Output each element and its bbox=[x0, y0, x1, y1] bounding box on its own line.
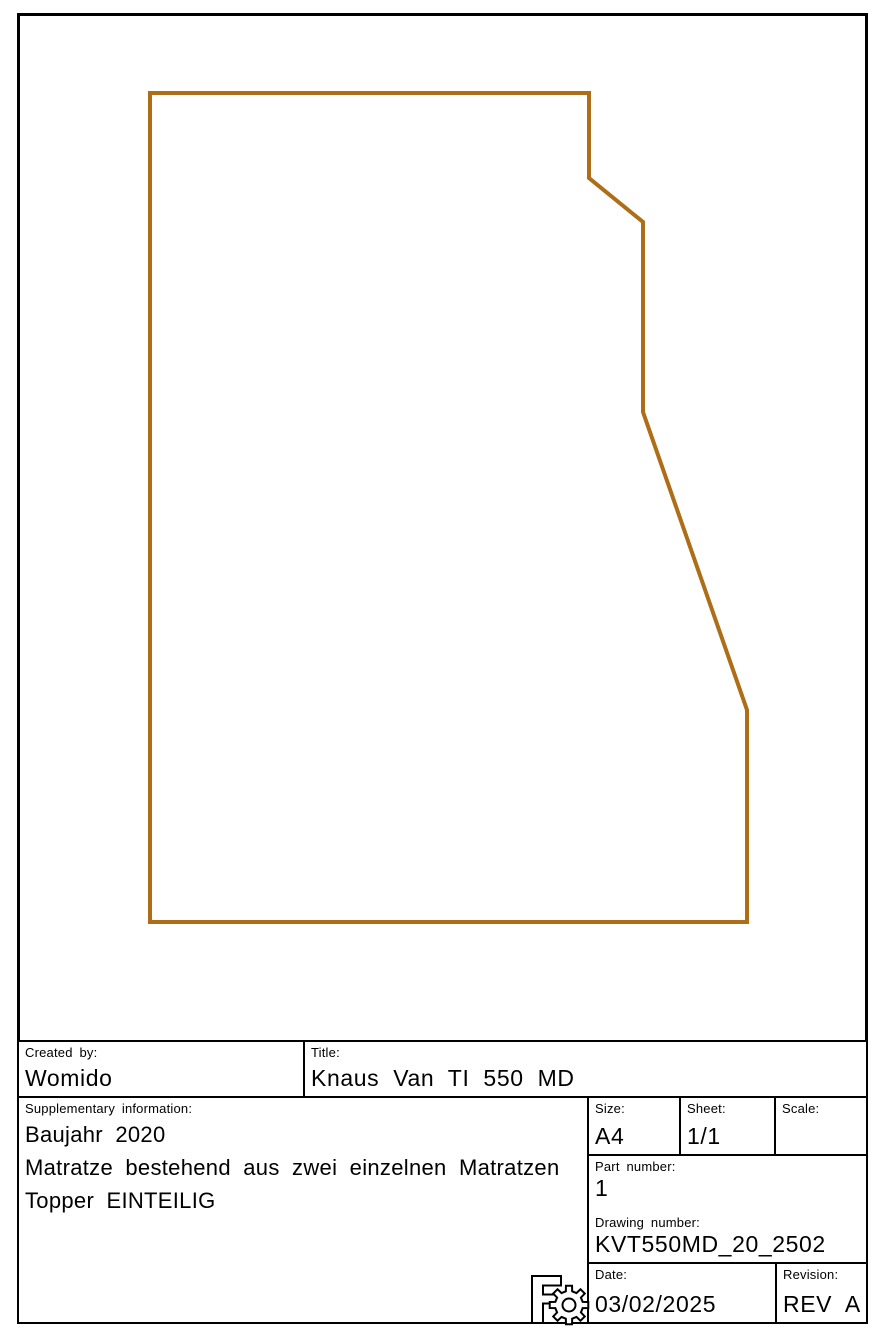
supplementary-info-lines: Baujahr 2020 Matratze bestehend aus zwei… bbox=[25, 1118, 581, 1217]
part-number-label: Part number: bbox=[595, 1159, 860, 1174]
revision-value: REV A bbox=[783, 1290, 860, 1318]
title-cell: Title: Knaus Van TI 550 MD bbox=[303, 1040, 868, 1098]
supplementary-info-cell: Supplementary information: Baujahr 2020 … bbox=[17, 1096, 589, 1324]
title-label: Title: bbox=[311, 1045, 860, 1060]
size-cell: Size: A4 bbox=[587, 1096, 681, 1156]
date-label: Date: bbox=[595, 1267, 769, 1282]
scale-cell: Scale: bbox=[774, 1096, 868, 1156]
sheet-label: Sheet: bbox=[687, 1101, 768, 1116]
drawing-number-value: KVT550MD_20_2502 bbox=[595, 1230, 860, 1258]
created-by-cell: Created by: Womido bbox=[17, 1040, 305, 1098]
part-and-drawing-number-cell: Part number: 1 Drawing number: KVT550MD_… bbox=[587, 1154, 868, 1264]
drawing-number-pair: Drawing number: KVT550MD_20_2502 bbox=[595, 1215, 860, 1258]
supplementary-line: Topper EINTEILIG bbox=[25, 1184, 581, 1217]
revision-cell: Revision: REV A bbox=[775, 1262, 868, 1324]
drawing-number-label: Drawing number: bbox=[595, 1215, 860, 1230]
created-by-label: Created by: bbox=[25, 1045, 297, 1060]
date-value: 03/02/2025 bbox=[595, 1290, 769, 1318]
mattress-outline-path bbox=[150, 93, 747, 922]
supplementary-line: Baujahr 2020 bbox=[25, 1118, 581, 1151]
freecad-gear-icon bbox=[528, 1271, 591, 1326]
revision-label: Revision: bbox=[783, 1267, 860, 1282]
size-label: Size: bbox=[595, 1101, 673, 1116]
gear-glyph bbox=[550, 1286, 589, 1325]
supplementary-line: Matratze bestehend aus zwei einzelnen Ma… bbox=[25, 1151, 581, 1184]
title-value: Knaus Van TI 550 MD bbox=[311, 1064, 860, 1092]
scale-label: Scale: bbox=[782, 1101, 860, 1116]
date-cell: Date: 03/02/2025 bbox=[587, 1262, 777, 1324]
part-number-value: 1 bbox=[595, 1174, 860, 1202]
supplementary-info-label: Supplementary information: bbox=[25, 1101, 581, 1116]
drawing-sheet: Created by: Womido Title: Knaus Van TI 5… bbox=[0, 0, 884, 1338]
size-value: A4 bbox=[595, 1122, 673, 1150]
sheet-value: 1/1 bbox=[687, 1122, 768, 1150]
part-number-pair: Part number: 1 bbox=[595, 1159, 860, 1202]
created-by-value: Womido bbox=[25, 1064, 297, 1092]
sheet-cell: Sheet: 1/1 bbox=[679, 1096, 776, 1156]
